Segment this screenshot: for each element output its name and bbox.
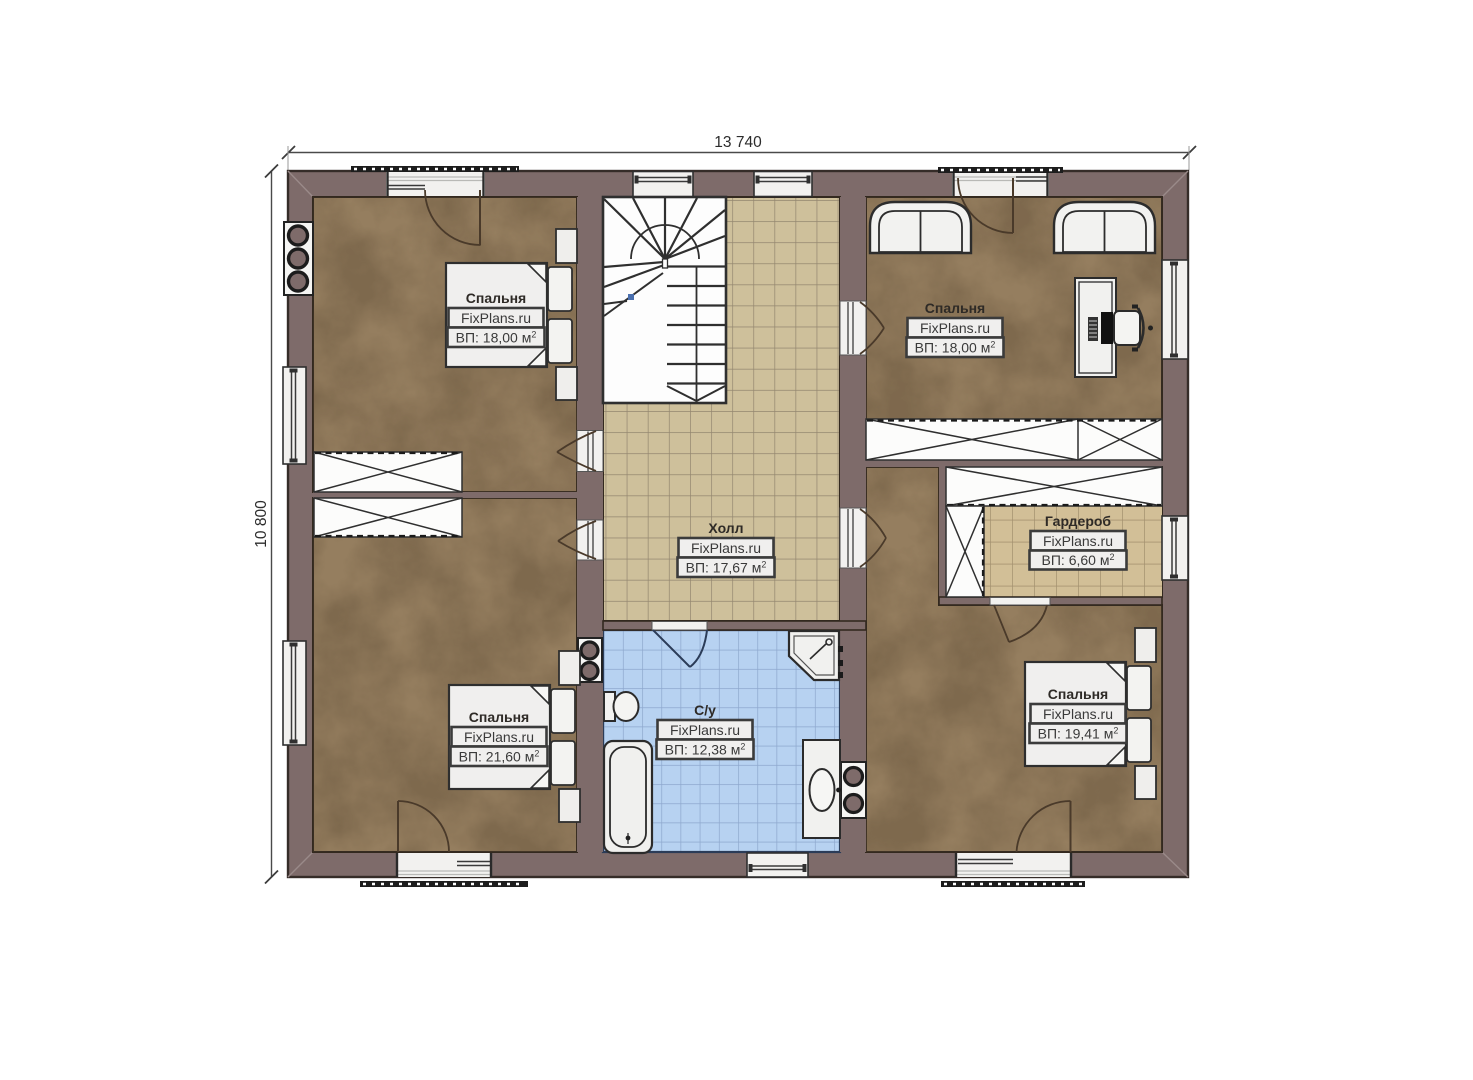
svg-text:FixPlans.ru: FixPlans.ru bbox=[1043, 533, 1113, 549]
svg-text:FixPlans.ru: FixPlans.ru bbox=[691, 540, 761, 556]
svg-text:ВП: 12,38 м2: ВП: 12,38 м2 bbox=[665, 742, 746, 758]
svg-text:FixPlans.ru: FixPlans.ru bbox=[464, 729, 534, 745]
svg-text:ВП: 18,00 м2: ВП: 18,00 м2 bbox=[456, 330, 537, 346]
svg-text:Холл: Холл bbox=[708, 520, 743, 536]
svg-text:FixPlans.ru: FixPlans.ru bbox=[461, 310, 531, 326]
svg-text:Спальня: Спальня bbox=[469, 709, 529, 725]
svg-text:13 740: 13 740 bbox=[714, 134, 762, 151]
svg-text:Спальня: Спальня bbox=[925, 300, 985, 316]
svg-text:ВП: 19,41 м2: ВП: 19,41 м2 bbox=[1038, 726, 1119, 742]
svg-text:ВП: 21,60 м2: ВП: 21,60 м2 bbox=[459, 749, 540, 765]
svg-text:Спальня: Спальня bbox=[466, 290, 526, 306]
svg-text:С/у: С/у bbox=[694, 702, 716, 718]
svg-text:ВП: 18,00 м2: ВП: 18,00 м2 bbox=[915, 340, 996, 356]
svg-text:FixPlans.ru: FixPlans.ru bbox=[670, 722, 740, 738]
svg-text:10 800: 10 800 bbox=[253, 500, 270, 548]
svg-text:ВП: 17,67 м2: ВП: 17,67 м2 bbox=[686, 560, 767, 576]
svg-text:FixPlans.ru: FixPlans.ru bbox=[1043, 706, 1113, 722]
svg-text:Гардероб: Гардероб bbox=[1045, 513, 1112, 529]
svg-text:ВП: 6,60 м2: ВП: 6,60 м2 bbox=[1042, 552, 1115, 568]
svg-text:Спальня: Спальня bbox=[1048, 686, 1108, 702]
svg-text:FixPlans.ru: FixPlans.ru bbox=[920, 320, 990, 336]
